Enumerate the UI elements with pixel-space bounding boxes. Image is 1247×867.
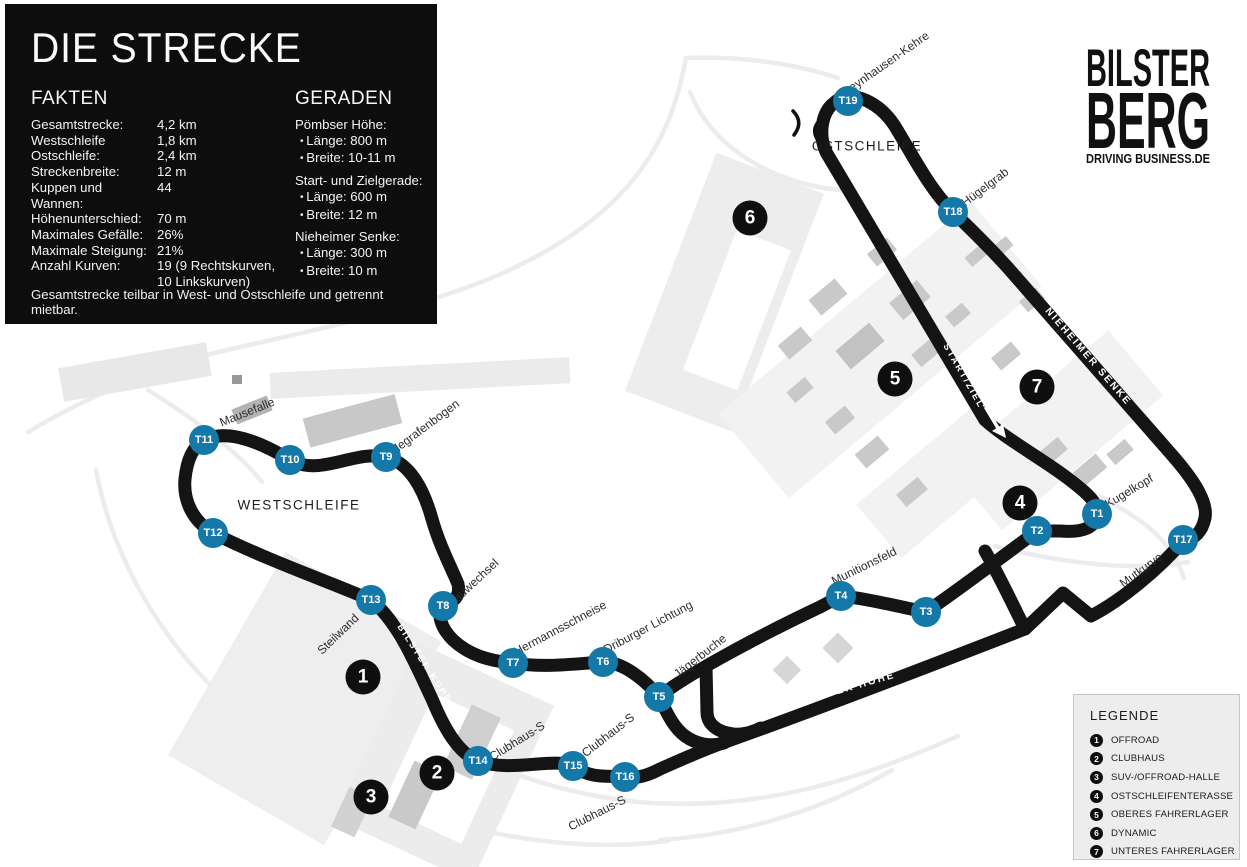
legend-number-badge: 3 <box>1090 771 1103 784</box>
turn-marker-t16: T16 <box>610 762 640 792</box>
turn-marker-t5: T5 <box>644 682 674 712</box>
page-title: DIE STRECKE <box>31 24 302 72</box>
straight-detail: Länge: 600 m <box>295 189 433 207</box>
fact-row: Maximale Steigung: 21% <box>31 243 283 259</box>
straight-name: Nieheimer Senke: <box>295 229 433 245</box>
legend-item-label: SUV-/OFFROAD-HALLE <box>1111 772 1220 783</box>
turn-marker-t4: T4 <box>826 581 856 611</box>
turn-marker-t12: T12 <box>198 518 228 548</box>
legend-items: 1 OFFROAD 2 CLUBHAUS 3 SUV-/OFFROAD-HALL… <box>1090 731 1235 861</box>
fact-value: 4,2 km <box>157 117 283 133</box>
turn-marker-t17: T17 <box>1168 525 1198 555</box>
straight-group: Nieheimer Senke: Länge: 300 m Breite: 10… <box>295 229 433 280</box>
fact-row: Ostschleife: 2,4 km <box>31 148 283 164</box>
legend-number-badge: 2 <box>1090 752 1103 765</box>
legend-item-label: CLUBHAUS <box>1111 753 1165 764</box>
straight-detail: Breite: 10-11 m <box>295 150 433 168</box>
straight-detail: Länge: 300 m <box>295 245 433 263</box>
legend-row: 6 DYNAMIC <box>1090 824 1235 843</box>
straight-name: Pömbser Höhe: <box>295 117 433 133</box>
fact-label: Kuppen und Wannen: <box>31 180 157 211</box>
turn-marker-t15: T15 <box>558 751 588 781</box>
legend-item-label: UNTERES FAHRERLAGER <box>1111 846 1235 857</box>
fact-label: Ostschleife: <box>31 148 157 164</box>
straights-column: GERADEN Pömbser Höhe: Länge: 800 m Breit… <box>295 88 433 285</box>
track-map-page: { "info_box": { "title": "DIE STRECKE", … <box>0 0 1247 867</box>
legend-number-badge: 4 <box>1090 790 1103 803</box>
fact-row: Westschleife 1,8 km <box>31 133 283 149</box>
section-label-westschleife: WESTSCHLEIFE <box>237 498 360 513</box>
facts-heading: FAKTEN <box>31 88 283 110</box>
fact-label: Anzahl Kurven: <box>31 258 157 289</box>
legend-number-badge: 5 <box>1090 808 1103 821</box>
fact-value: 21% <box>157 243 283 259</box>
straight-group: Pömbser Höhe: Länge: 800 m Breite: 10-11… <box>295 117 433 168</box>
straight-detail: Länge: 800 m <box>295 133 433 151</box>
legend-item-label: OSTSCHLEIFENTERASSE <box>1111 791 1233 802</box>
fact-label: Maximale Steigung: <box>31 243 157 259</box>
facility-marker-clubhaus: 2 <box>420 756 455 791</box>
turn-marker-t19: T19 <box>833 86 863 116</box>
turn-marker-t2: T2 <box>1022 516 1052 546</box>
logo-tagline: DRIVING BUSINESS.DE <box>1086 152 1210 166</box>
facility-marker-oberes-fahrerlager: 5 <box>878 362 913 397</box>
facility-marker-suv-offroad-halle: 3 <box>354 780 389 815</box>
fact-row: Maximales Gefälle: 26% <box>31 227 283 243</box>
fact-label: Maximales Gefälle: <box>31 227 157 243</box>
track-split-chevron-icon <box>793 111 820 142</box>
turn-marker-t3: T3 <box>911 597 941 627</box>
logo-graphic: BILSTER BERG DRIVING BUSINESS.DE <box>1085 42 1215 170</box>
legend-number-badge: 1 <box>1090 734 1103 747</box>
facility-marker-dynamic: 6 <box>733 201 768 236</box>
legend-item-label: OBERES FAHRERLAGER <box>1111 809 1229 820</box>
turn-marker-t9: T9 <box>371 442 401 472</box>
fact-row: Streckenbreite: 12 m <box>31 164 283 180</box>
fact-value: 70 m <box>157 211 283 227</box>
fact-value: 1,8 km <box>157 133 283 149</box>
legend-item-label: DYNAMIC <box>1111 828 1157 839</box>
turn-marker-t13: T13 <box>356 585 386 615</box>
legend-box: LEGENDE 1 OFFROAD 2 CLUBHAUS 3 SUV-/OFFR… <box>1073 694 1240 860</box>
fact-row: Kuppen und Wannen: 44 <box>31 180 283 211</box>
fact-value: 26% <box>157 227 283 243</box>
turn-marker-t1: T1 <box>1082 499 1112 529</box>
fact-value: 19 (9 Rechtskurven, 10 Linkskurven) <box>157 258 283 289</box>
facility-marker-ostschleifenterasse: 4 <box>1003 486 1038 521</box>
turn-marker-t10: T10 <box>275 445 305 475</box>
legend-row: 2 CLUBHAUS <box>1090 750 1235 769</box>
straights-heading: GERADEN <box>295 88 433 110</box>
fact-label: Westschleife <box>31 133 157 149</box>
fact-row: Höhenunterschied: 70 m <box>31 211 283 227</box>
straight-group: Start- und Zielgerade: Länge: 600 m Brei… <box>295 173 433 224</box>
fact-row: Anzahl Kurven: 19 (9 Rechtskurven, 10 Li… <box>31 258 283 289</box>
fact-label: Höhenunterschied: <box>31 211 157 227</box>
turn-marker-t11: T11 <box>189 425 219 455</box>
fact-value: 12 m <box>157 164 283 180</box>
legend-item-label: OFFROAD <box>1111 735 1159 746</box>
fact-row: Gesamtstrecke: 4,2 km <box>31 117 283 133</box>
facts-column: FAKTEN Gesamtstrecke: 4,2 km Westschleif… <box>31 88 283 290</box>
legend-number-badge: 7 <box>1090 845 1103 858</box>
straight-detail: Breite: 10 m <box>295 263 433 281</box>
legend-row: 1 OFFROAD <box>1090 731 1235 750</box>
legend-row: 7 UNTERES FAHRERLAGER <box>1090 843 1235 862</box>
legend-row: 3 SUV-/OFFROAD-HALLE <box>1090 768 1235 787</box>
turn-marker-t6: T6 <box>588 647 618 677</box>
legend-number-badge: 6 <box>1090 827 1103 840</box>
info-box: DIE STRECKE FAKTEN Gesamtstrecke: 4,2 km… <box>5 4 437 324</box>
facility-marker-unteres-fahrerlager: 7 <box>1020 370 1055 405</box>
turn-marker-t14: T14 <box>463 746 493 776</box>
turn-marker-t7: T7 <box>498 648 528 678</box>
info-footnote: Gesamtstrecke teilbar in West- und Ostsc… <box>31 287 421 317</box>
straight-detail: Breite: 12 m <box>295 207 433 225</box>
turn-marker-t8: T8 <box>428 591 458 621</box>
section-label-ostschleife: OSTSCHLEIFE <box>812 139 922 154</box>
legend-row: 4 OSTSCHLEIFENTERASSE <box>1090 787 1235 806</box>
facility-marker-offroad: 1 <box>346 660 381 695</box>
fact-label: Streckenbreite: <box>31 164 157 180</box>
fact-label: Gesamtstrecke: <box>31 117 157 133</box>
turn-marker-t18: T18 <box>938 197 968 227</box>
fact-value: 44 <box>157 180 283 211</box>
bilster-berg-logo: BILSTER BERG DRIVING BUSINESS.DE <box>1085 42 1215 175</box>
legend-heading: LEGENDE <box>1090 708 1159 723</box>
legend-row: 5 OBERES FAHRERLAGER <box>1090 805 1235 824</box>
fact-value: 2,4 km <box>157 148 283 164</box>
straight-name: Start- und Zielgerade: <box>295 173 433 189</box>
